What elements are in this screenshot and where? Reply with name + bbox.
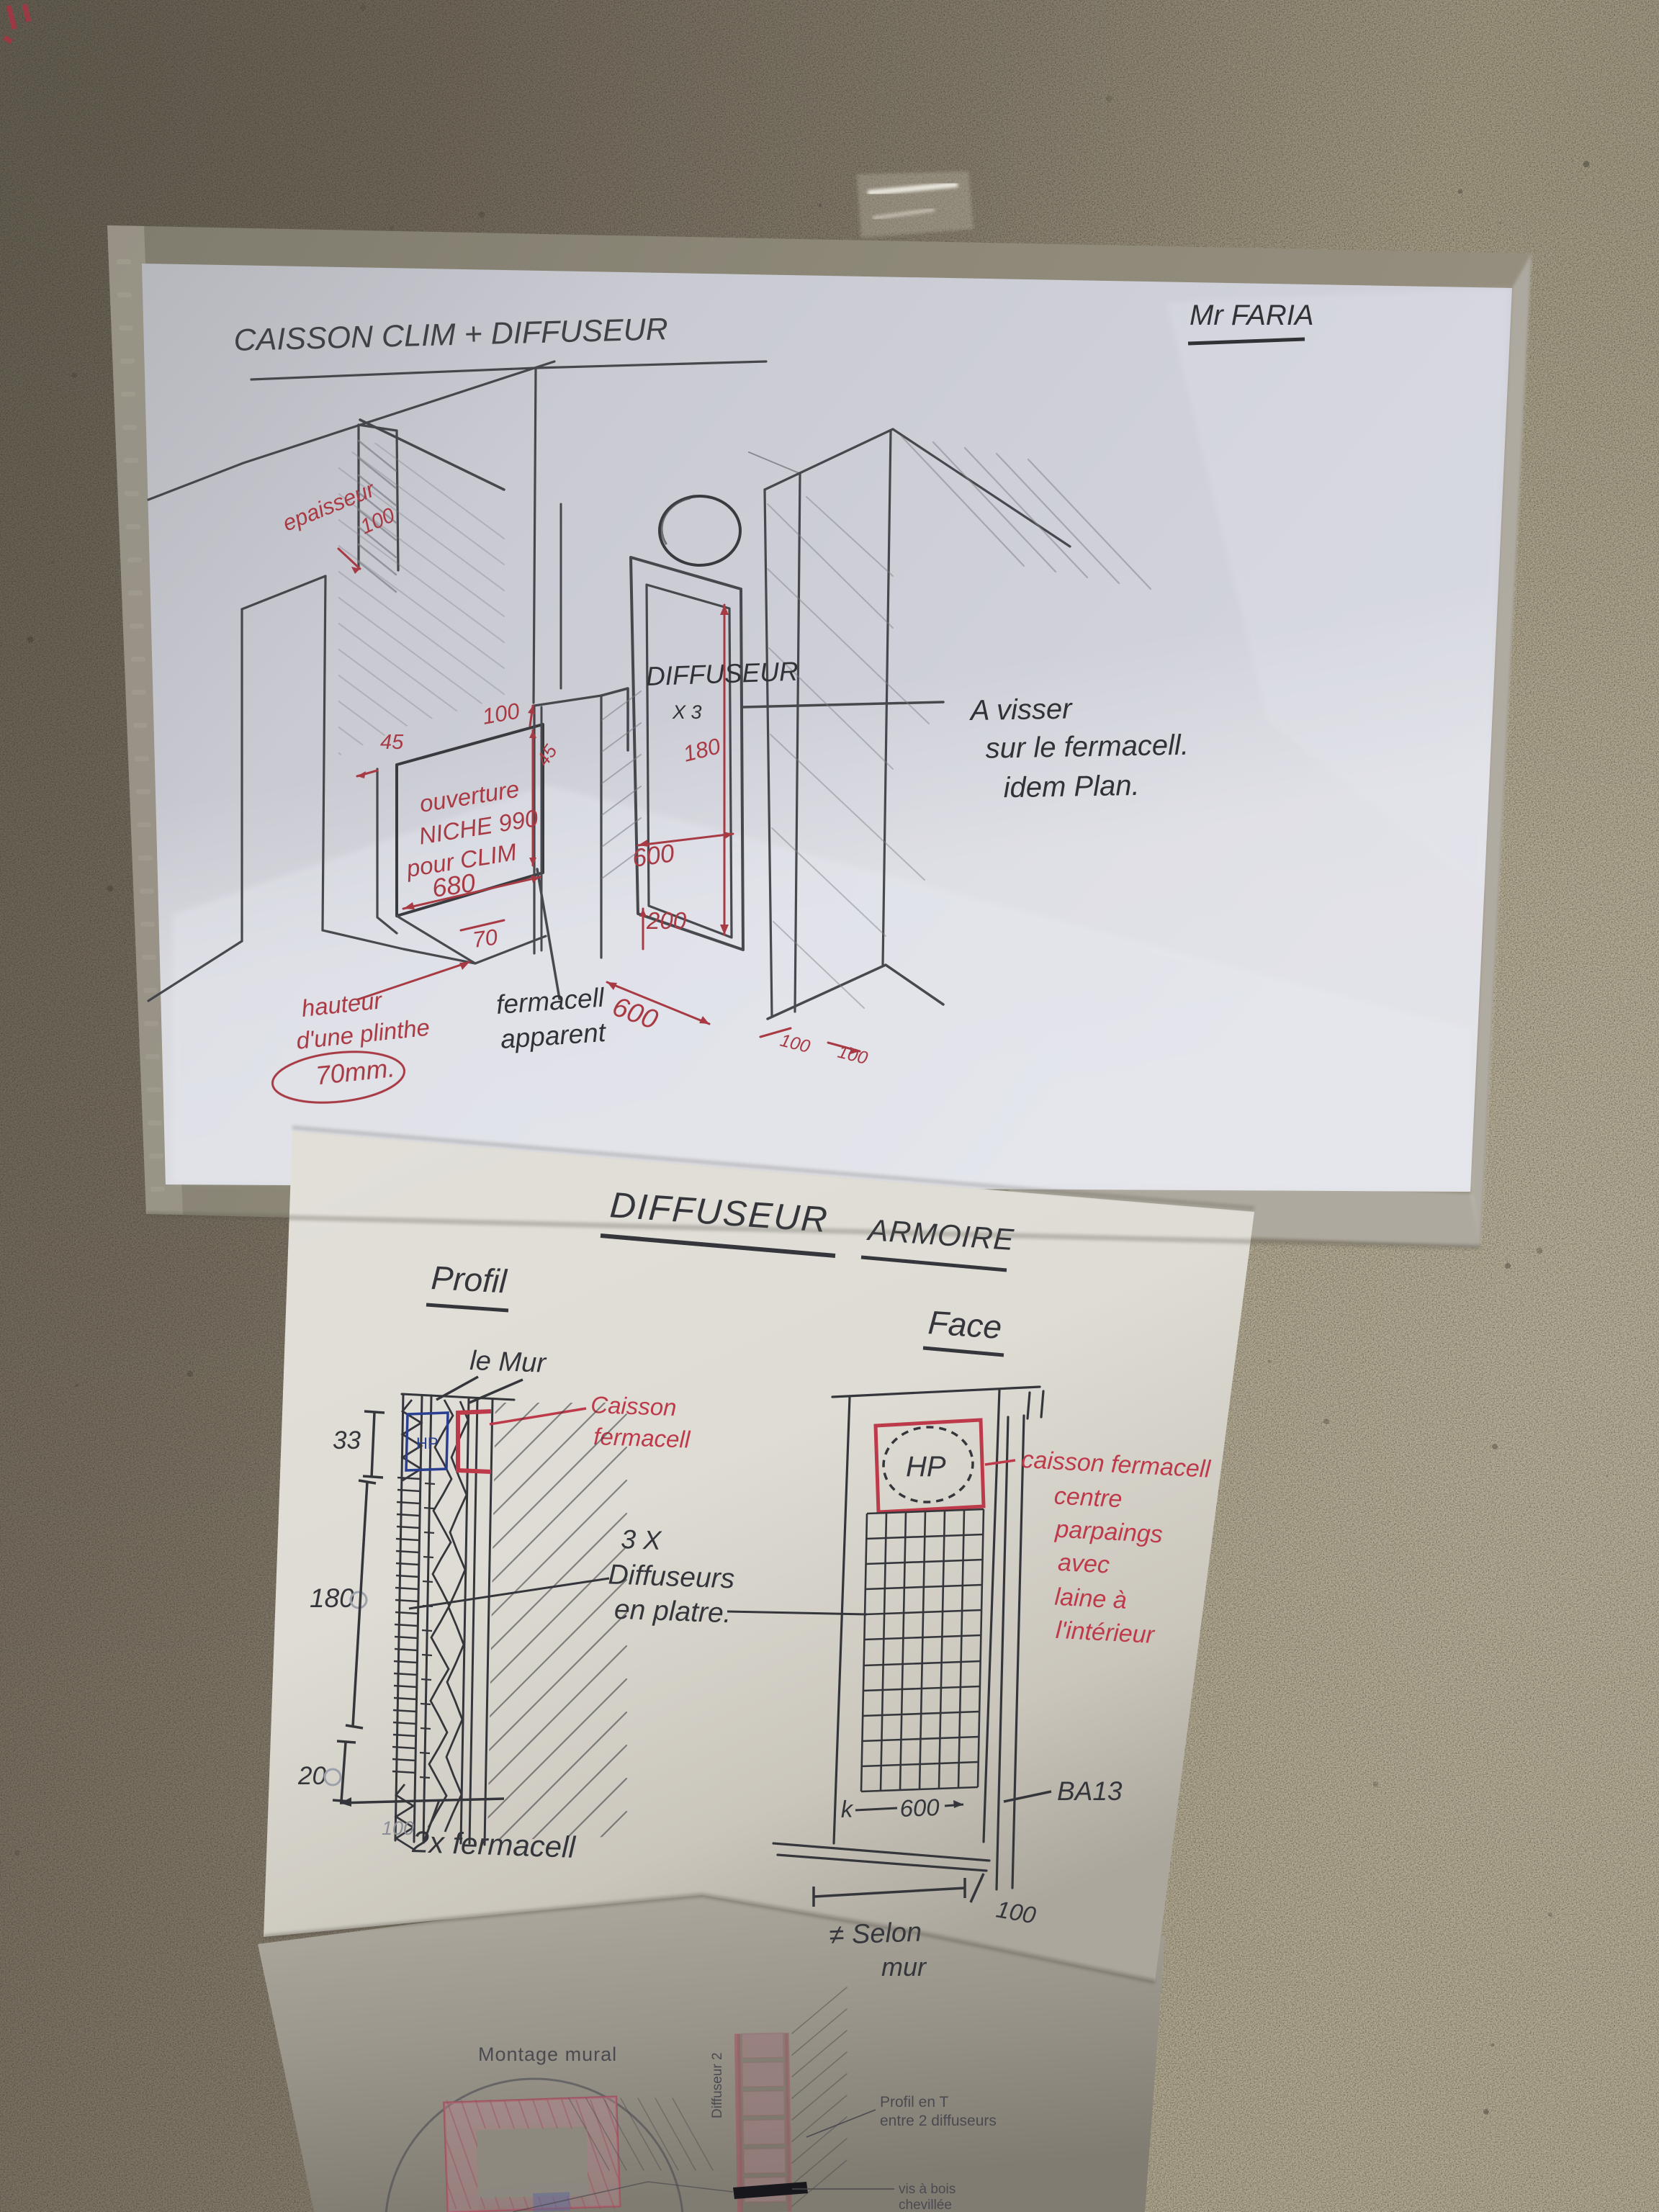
svg-text:Montage mural: Montage mural [478, 2044, 617, 2065]
svg-text:Diffuseur 2: Diffuseur 2 [710, 2052, 725, 2118]
svg-text:mur: mur [881, 1952, 927, 1982]
svg-text:20: 20 [297, 1762, 326, 1790]
svg-text:Caisson: Caisson [590, 1391, 677, 1421]
svg-text:200: 200 [646, 907, 687, 934]
svg-text:chevillée: chevillée [899, 2198, 952, 2212]
svg-text:100: 100 [382, 1817, 414, 1839]
svg-text:laine à: laine à [1054, 1583, 1128, 1614]
svg-text:180: 180 [310, 1583, 354, 1613]
svg-text:Mr FARIA: Mr FARIA [1190, 300, 1314, 331]
svg-text:Face: Face [927, 1303, 1003, 1346]
svg-text:X 3: X 3 [672, 701, 702, 723]
svg-text:l'intérieur: l'intérieur [1055, 1617, 1156, 1649]
svg-text:vis à bois: vis à bois [899, 2182, 956, 2197]
svg-text:HP: HP [416, 1434, 439, 1452]
svg-text:3 X: 3 X [621, 1524, 662, 1555]
svg-text:HP: HP [906, 1451, 946, 1483]
svg-text:≠ Selon: ≠ Selon [829, 1917, 922, 1951]
svg-text:centre: centre [1053, 1482, 1123, 1513]
svg-text:2x fermacell: 2x fermacell [411, 1825, 577, 1864]
svg-text:33: 33 [333, 1426, 361, 1455]
svg-text:k: k [840, 1795, 854, 1822]
svg-text:entre 2 diffuseurs: entre 2 diffuseurs [880, 2113, 997, 2129]
svg-text:A visser: A visser [968, 693, 1073, 727]
svg-text:idem Plan.: idem Plan. [1003, 770, 1140, 804]
svg-text:BA13: BA13 [1057, 1776, 1123, 1806]
svg-text:600: 600 [899, 1794, 940, 1822]
svg-text:70: 70 [471, 924, 499, 952]
svg-text:DIFFUSEUR: DIFFUSEUR [645, 657, 799, 691]
svg-text:Profil: Profil [430, 1259, 508, 1300]
svg-text:45: 45 [380, 731, 404, 754]
svg-text:Profil en T: Profil en T [880, 2094, 948, 2110]
svg-text:sur le fermacell.: sur le fermacell. [985, 729, 1189, 765]
svg-text:en platre.: en platre. [613, 1594, 732, 1629]
svg-text:Diffuseurs: Diffuseurs [608, 1559, 735, 1594]
svg-text:le Mur: le Mur [469, 1346, 547, 1379]
svg-text:parpaings: parpaings [1054, 1516, 1164, 1549]
svg-text:fermacell: fermacell [593, 1423, 692, 1453]
svg-text:avec: avec [1057, 1549, 1110, 1579]
